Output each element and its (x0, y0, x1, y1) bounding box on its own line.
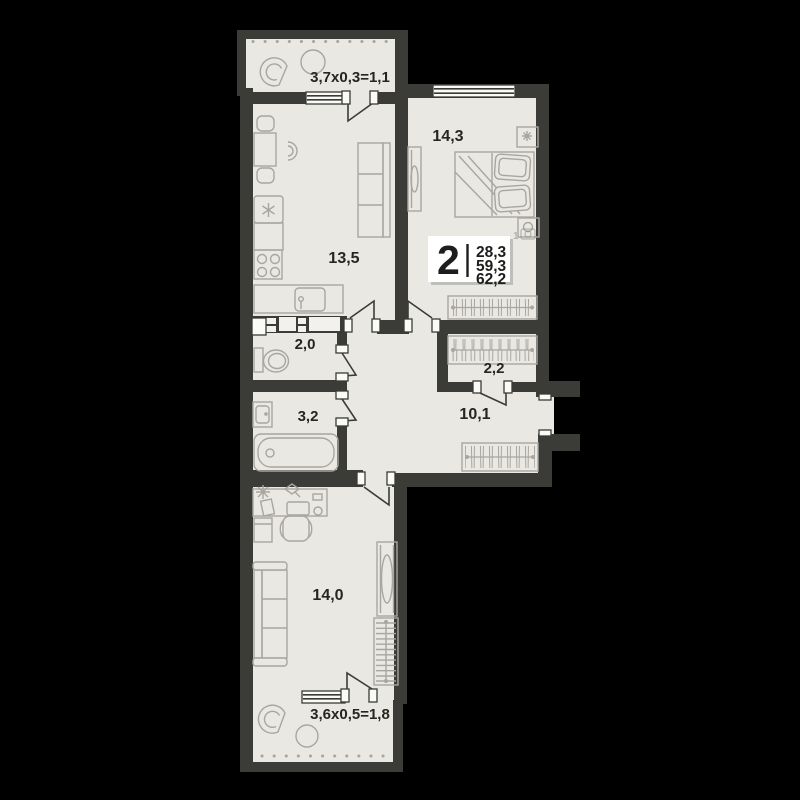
rail-end (465, 455, 469, 459)
wall (395, 30, 408, 334)
door-jamb (369, 689, 377, 702)
wall (437, 320, 546, 334)
wc-area-label: 2,0 (295, 336, 316, 353)
door-jamb (342, 91, 350, 104)
wall (246, 92, 308, 104)
kitchen-balcony-window (306, 92, 345, 104)
room-area-label: 14,0 (312, 587, 343, 604)
door-jamb (387, 472, 395, 485)
rail-end (451, 306, 455, 310)
door-jamb (504, 381, 512, 393)
window (433, 85, 515, 97)
pillow (494, 154, 531, 181)
shaft-slot (309, 317, 340, 331)
water-heater (252, 318, 266, 335)
wall (508, 382, 549, 392)
door-jamb (336, 373, 348, 381)
door-jamb (336, 391, 348, 399)
pillow (494, 185, 531, 212)
wall (240, 762, 403, 772)
door-jamb (357, 472, 365, 485)
sofa-back (383, 143, 390, 237)
balcony-bottom-label: 3,6x0,5=1,8 (310, 706, 390, 723)
shaft-slot (266, 326, 276, 332)
shaft-slot (266, 318, 276, 324)
window (302, 691, 345, 703)
entrance-floor (540, 397, 554, 434)
wall (237, 30, 403, 39)
door-jamb (432, 319, 440, 332)
sofa-back (254, 570, 262, 658)
bathroom-area-label: 3,2 (298, 408, 319, 425)
floor-plan-svg: 3,7x0,3=1,1 14,3 13,5 2,0 3,2 2,2 10,1 1… (0, 0, 800, 800)
rail-end (384, 620, 388, 624)
floor-plan-canvas: 3,7x0,3=1,1 14,3 13,5 2,0 3,2 2,2 10,1 1… (0, 0, 800, 800)
kitchen-area-label: 13,5 (328, 250, 359, 267)
balcony-top-label: 3,7x0,3=1,1 (310, 69, 390, 86)
door-jamb (341, 689, 349, 702)
rail-end (530, 306, 534, 310)
sofa-armrest (253, 562, 287, 570)
wall (393, 700, 403, 764)
door-jamb (336, 418, 348, 426)
wall (437, 382, 477, 392)
rail-end (451, 348, 455, 352)
hallway-area-label: 10,1 (459, 406, 490, 423)
pillow-outline (494, 185, 531, 212)
plant-icon (522, 131, 532, 141)
photo-count: 1 (513, 231, 519, 242)
rail-end (531, 455, 535, 459)
door-jamb (404, 319, 412, 332)
apartment-badge: 2 28,3 59,3 62,2 (428, 236, 513, 288)
bedroom-window (433, 85, 515, 97)
bedroom-area-label: 14,3 (432, 128, 463, 145)
wardrobe-area-label: 2,2 (484, 360, 505, 377)
door-jamb (370, 91, 378, 104)
pillow-outline (494, 154, 531, 181)
wall (237, 30, 246, 96)
wall (394, 473, 407, 704)
badge-room-count: 2 (437, 237, 460, 283)
door-jamb (473, 381, 481, 393)
room-balcony-window (302, 691, 345, 703)
sink-faucet (264, 412, 268, 416)
wardrobe-bedroom (448, 296, 537, 319)
wall (245, 380, 347, 392)
shaft-slot (298, 326, 306, 332)
rail-end (384, 679, 388, 683)
sofa-armrest (253, 658, 287, 666)
door-jamb (372, 319, 380, 332)
rail-end (530, 348, 534, 352)
shaft-slot (298, 318, 306, 324)
wall (392, 473, 552, 487)
badge-area-3: 62,2 (476, 271, 506, 288)
wall (240, 88, 253, 772)
door-jamb (344, 319, 352, 332)
shaft-slot (279, 317, 296, 331)
window (306, 92, 345, 104)
plant-icon (256, 485, 270, 499)
door-jamb (336, 345, 348, 353)
entrance-jamb (539, 430, 551, 436)
entrance-jamb (539, 394, 551, 400)
wall (377, 92, 395, 104)
hallway (462, 443, 538, 471)
